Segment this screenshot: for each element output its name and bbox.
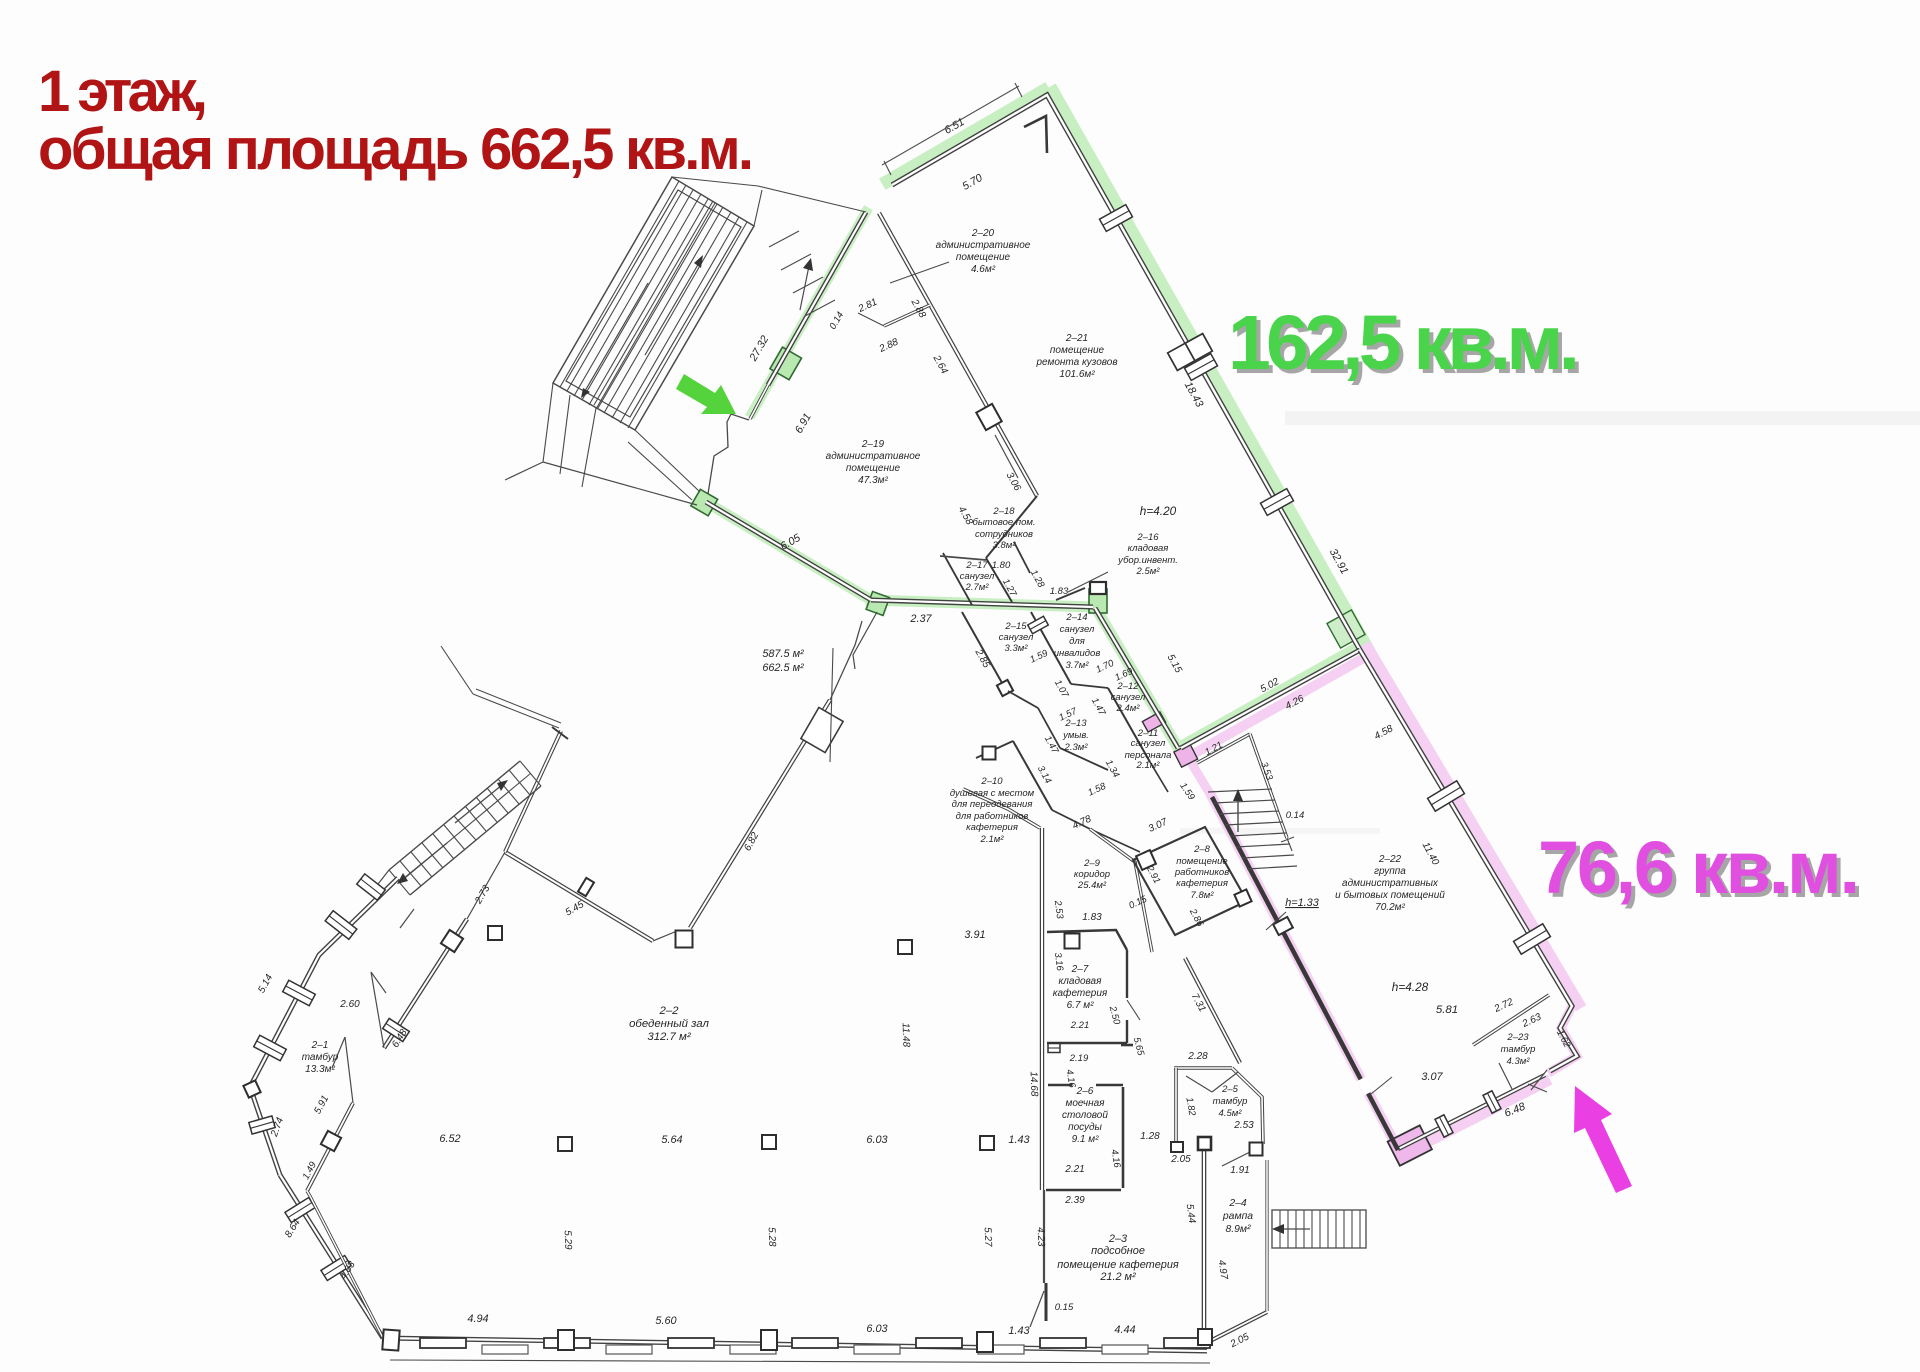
svg-text:70.2м²: 70.2м² [1375,902,1405,913]
svg-text:3.07: 3.07 [1147,816,1170,834]
svg-text:2.05: 2.05 [1170,1154,1191,1165]
svg-text:2.50: 2.50 [1106,1004,1122,1026]
svg-text:санузел: санузел [999,632,1034,643]
svg-text:1.47: 1.47 [1089,696,1108,718]
svg-text:2.21: 2.21 [1070,1020,1090,1031]
svg-text:587.5 м²: 587.5 м² [762,648,804,660]
svg-text:2–2: 2–2 [658,1005,679,1017]
svg-text:2–16: 2–16 [1136,532,1159,543]
svg-text:1.59: 1.59 [1177,781,1197,803]
svg-text:4.58: 4.58 [1373,723,1396,742]
svg-text:2–7: 2–7 [1071,964,1089,975]
svg-text:тамбур: тамбур [1501,1044,1536,1055]
svg-text:1.91: 1.91 [1230,1165,1249,1176]
svg-text:3.06: 3.06 [1004,471,1023,494]
svg-text:для: для [1069,636,1085,647]
svg-text:ремонта кузовов: ремонта кузовов [1035,357,1117,368]
svg-text:2.19: 2.19 [1069,1053,1089,1064]
svg-text:тамбур: тамбур [1213,1096,1248,1107]
svg-text:6.91: 6.91 [793,411,814,435]
svg-text:3.8м²: 3.8м² [993,540,1017,551]
svg-text:административное: административное [826,451,921,462]
svg-text:2.3м²: 2.3м² [1064,742,1089,753]
svg-text:рампа: рампа [1222,1211,1253,1222]
svg-text:1.43: 1.43 [1008,1325,1029,1337]
svg-text:2–4: 2–4 [1228,1198,1247,1209]
svg-text:подсобное: подсобное [1091,1245,1145,1257]
svg-text:обеденный зал: обеденный зал [629,1018,709,1030]
svg-text:1.28: 1.28 [1028,568,1047,590]
svg-text:5.70: 5.70 [960,172,984,193]
svg-text:1.82: 1.82 [1183,1097,1197,1118]
svg-text:санузел: санузел [1131,738,1166,749]
svg-text:1.43: 1.43 [1008,1134,1029,1146]
svg-text:7.8м²: 7.8м² [1191,890,1215,901]
svg-text:13.3м²: 13.3м² [305,1064,335,1075]
svg-text:162,5 кв.м.: 162,5 кв.м. [1228,300,1580,386]
svg-text:работников: работников [1174,867,1229,878]
svg-text:административное: административное [936,240,1031,251]
svg-text:5.64: 5.64 [661,1134,682,1146]
svg-text:6.03: 6.03 [866,1323,887,1335]
svg-text:h=4.20: h=4.20 [1140,504,1177,518]
svg-text:группа: группа [1374,866,1406,877]
svg-text:14.68: 14.68 [1028,1071,1040,1097]
svg-text:кафетерия: кафетерия [1176,878,1228,889]
svg-text:умыв.: умыв. [1062,730,1089,741]
svg-text:3.16: 3.16 [1052,952,1066,973]
svg-text:2–14: 2–14 [1065,612,1087,623]
svg-text:помещение: помещение [956,252,1011,263]
svg-text:5.28: 5.28 [766,1227,778,1247]
svg-text:5.60: 5.60 [655,1315,676,1327]
svg-text:25.4м²: 25.4м² [1077,880,1107,891]
svg-text:убор.инвент.: убор.инвент. [1117,555,1178,566]
svg-text:2.7м²: 2.7м² [965,582,990,593]
svg-text:76,6 кв.м.: 76,6 кв.м. [1538,826,1860,909]
svg-text:5.91: 5.91 [312,1094,331,1116]
svg-text:2.5м²: 2.5м² [1136,566,1161,577]
svg-text:2.81: 2.81 [856,297,879,316]
svg-text:помещение кафетерия: помещение кафетерия [1057,1259,1179,1271]
svg-text:тамбур: тамбур [302,1051,339,1063]
svg-text:и бытовых помещений: и бытовых помещений [1335,889,1445,901]
svg-text:2.37: 2.37 [909,613,932,625]
svg-text:2–22: 2–22 [1378,854,1402,865]
svg-text:5.65: 5.65 [1131,1036,1147,1057]
svg-text:2–3: 2–3 [1108,1233,1127,1245]
svg-text:4.44: 4.44 [1114,1324,1135,1336]
svg-text:2.39: 2.39 [1064,1195,1085,1206]
svg-text:2.86: 2.86 [1187,906,1206,929]
svg-text:4.5м²: 4.5м² [1219,1108,1243,1119]
svg-text:5.27: 5.27 [982,1227,994,1247]
svg-text:4.97: 4.97 [1216,1259,1230,1280]
svg-text:662.5 м²: 662.5 м² [762,662,804,674]
svg-text:6.82: 6.82 [742,830,761,853]
svg-text:кафетерия: кафетерия [1053,987,1108,999]
svg-text:11.40: 11.40 [1420,841,1441,868]
svg-text:1.58: 1.58 [1086,781,1108,799]
svg-text:посуды: посуды [1068,1122,1102,1133]
svg-text:помещение: помещение [1176,856,1227,867]
svg-text:для работников: для работников [956,811,1029,822]
svg-text:3.7м²: 3.7м² [1066,660,1090,671]
svg-text:3.53: 3.53 [1258,761,1275,783]
svg-text:1 этаж,: 1 этаж, [38,59,208,124]
svg-text:4.94: 4.94 [467,1313,488,1325]
svg-text:2–18: 2–18 [992,506,1015,517]
svg-text:2.21: 2.21 [1064,1164,1084,1175]
svg-text:1.83: 1.83 [1082,912,1102,923]
svg-text:2.63: 2.63 [1520,1011,1544,1030]
svg-text:инвалидов: инвалидов [1054,648,1101,659]
svg-text:административных: административных [1342,878,1439,889]
svg-text:3.14: 3.14 [1035,764,1054,786]
svg-text:помещение: помещение [1050,345,1105,356]
svg-text:коридор: коридор [1074,869,1110,880]
svg-text:18.43: 18.43 [1182,380,1206,410]
svg-text:0.14: 0.14 [1286,810,1305,821]
svg-text:4.23: 4.23 [1035,1227,1047,1247]
svg-text:2.4м²: 2.4м² [1116,703,1141,714]
svg-text:2.05: 2.05 [1228,1331,1252,1350]
svg-text:2.64: 2.64 [930,353,950,377]
svg-text:h=4.28: h=4.28 [1392,980,1429,994]
svg-text:1.47: 1.47 [1042,734,1061,756]
svg-text:2.85: 2.85 [972,647,992,671]
svg-text:0.14: 0.14 [827,310,846,332]
svg-text:9.1 м²: 9.1 м² [1072,1134,1100,1145]
svg-text:5.45: 5.45 [564,899,587,918]
svg-text:0.15: 0.15 [1127,894,1149,912]
svg-text:2–19: 2–19 [861,439,885,450]
svg-text:столовой: столовой [1062,1110,1108,1121]
svg-text:6.03: 6.03 [866,1134,887,1146]
svg-text:2.88: 2.88 [877,336,901,355]
svg-text:1.59: 1.59 [1028,648,1050,666]
svg-text:3.3м²: 3.3м² [1005,643,1029,654]
svg-text:2–1: 2–1 [311,1040,329,1051]
svg-text:2–9: 2–9 [1083,858,1101,869]
svg-text:47.3м²: 47.3м² [858,475,888,486]
svg-text:моечная: моечная [1066,1098,1106,1109]
svg-text:1.80: 1.80 [992,560,1011,571]
svg-text:4.6м²: 4.6м² [971,264,996,275]
svg-text:2.1м²: 2.1м² [1136,760,1161,771]
svg-text:кафетерия: кафетерия [966,822,1018,833]
svg-text:3.07: 3.07 [1421,1071,1443,1083]
svg-text:0.15: 0.15 [1055,1302,1074,1313]
svg-text:кладовая: кладовая [1128,543,1169,554]
svg-text:2.1м²: 2.1м² [980,834,1005,845]
svg-text:1.07: 1.07 [1052,678,1071,700]
svg-text:2–20: 2–20 [971,228,995,239]
svg-text:2.53: 2.53 [1052,899,1066,921]
svg-text:кладовая: кладовая [1059,976,1103,987]
svg-text:2–23: 2–23 [1506,1032,1529,1043]
svg-text:5.44: 5.44 [1184,1203,1198,1224]
svg-text:2.60: 2.60 [339,999,360,1010]
svg-text:312.7 м²: 312.7 м² [647,1031,691,1043]
svg-text:2–15: 2–15 [1004,621,1027,632]
svg-text:2.53: 2.53 [1233,1120,1254,1131]
svg-text:3.91: 3.91 [964,929,985,941]
svg-text:6.52: 6.52 [439,1133,460,1145]
svg-text:5.14: 5.14 [256,972,275,995]
svg-text:2.72: 2.72 [1492,996,1516,1015]
svg-text:8.9м²: 8.9м² [1225,1224,1251,1235]
svg-text:сотрудников: сотрудников [975,529,1033,540]
svg-text:1.83: 1.83 [1050,586,1069,597]
svg-text:4.16: 4.16 [1108,1149,1122,1170]
svg-text:2–8: 2–8 [1193,844,1211,855]
svg-text:27.32: 27.32 [747,334,772,364]
svg-text:санузел: санузел [960,571,995,582]
svg-text:для переодевания: для переодевания [952,799,1033,810]
svg-text:6.7 м²: 6.7 м² [1067,1000,1095,1011]
svg-text:h=1.33: h=1.33 [1285,897,1319,909]
svg-text:бытовое пом.: бытовое пом. [972,517,1035,528]
svg-text:санузел: санузел [1111,692,1146,703]
svg-text:5.81: 5.81 [1436,1004,1458,1016]
svg-text:2–10: 2–10 [980,776,1003,787]
svg-text:8.64: 8.64 [283,1217,303,1240]
svg-text:санузел: санузел [1060,624,1095,635]
svg-text:помещение: помещение [846,463,901,474]
svg-text:2.28: 2.28 [1187,1051,1208,1062]
svg-text:2.88: 2.88 [908,297,928,321]
svg-text:4.3м²: 4.3м² [1507,1056,1531,1067]
svg-text:2–17: 2–17 [965,560,988,571]
svg-text:2–6: 2–6 [1076,1086,1094,1097]
svg-text:2–5: 2–5 [1221,1084,1239,1095]
svg-text:5.15: 5.15 [1165,653,1184,676]
svg-text:общая площадь 662,5 кв.м.: общая площадь 662,5 кв.м. [38,117,754,182]
svg-text:101.6м²: 101.6м² [1059,369,1095,380]
svg-text:2–21: 2–21 [1065,333,1088,344]
svg-text:душевая с местом: душевая с местом [950,788,1035,799]
svg-text:1.28: 1.28 [1140,1131,1160,1142]
svg-text:5.29: 5.29 [562,1230,574,1250]
svg-text:11.48: 11.48 [900,1023,912,1048]
svg-text:21.2 м²: 21.2 м² [1099,1271,1136,1283]
